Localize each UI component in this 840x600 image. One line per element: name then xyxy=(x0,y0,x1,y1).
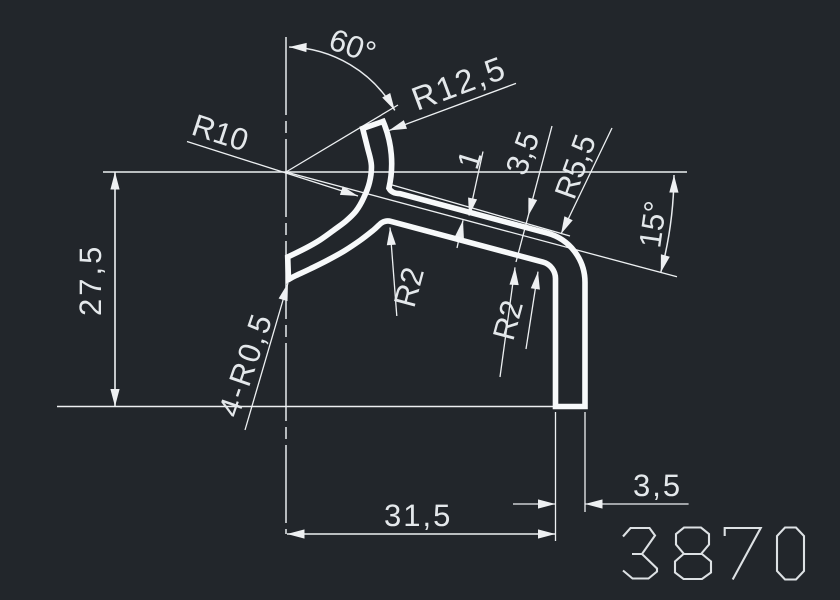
svg-text:15°: 15° xyxy=(632,199,673,250)
svg-text:27,5: 27,5 xyxy=(73,244,108,316)
svg-text:31,5: 31,5 xyxy=(384,498,452,533)
svg-text:3,5: 3,5 xyxy=(633,468,682,503)
